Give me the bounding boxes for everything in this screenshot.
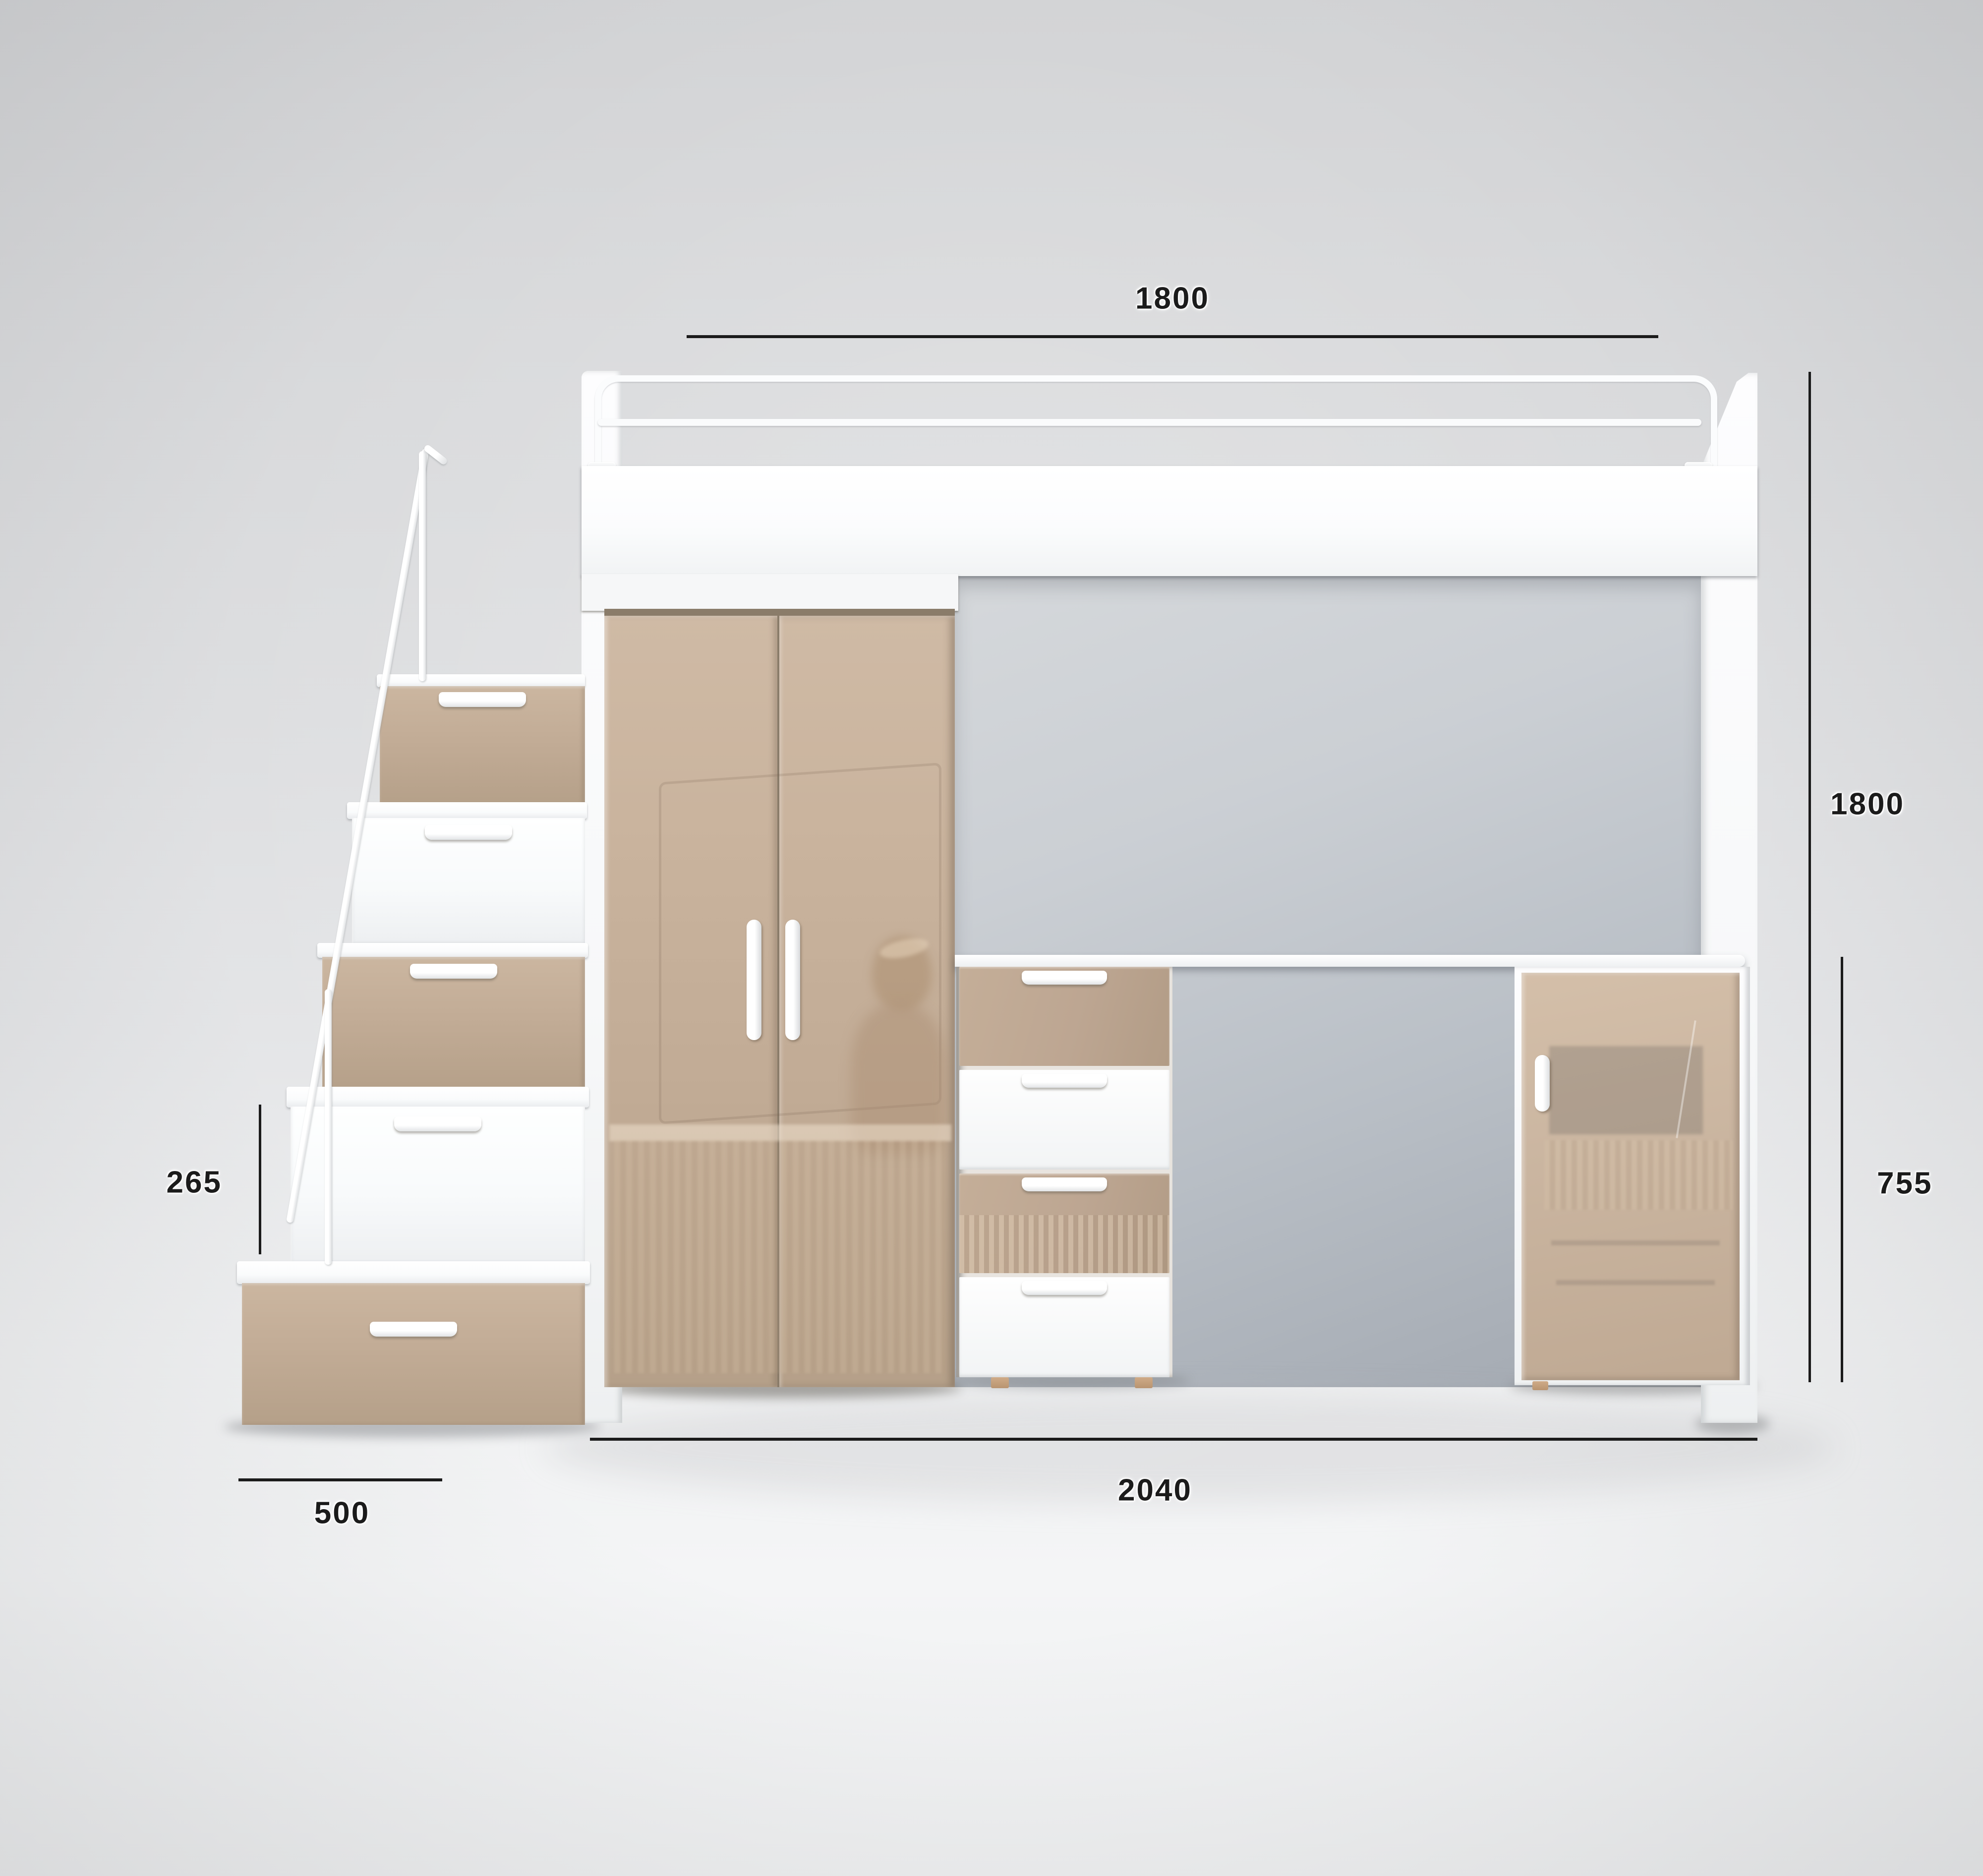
dim-label-bed-top-length: 1800 [1135, 281, 1210, 316]
step-3-tread [317, 943, 588, 958]
wardrobe-reflection-vanity-top [609, 1124, 951, 1141]
desk-drawer-3 [959, 1173, 1169, 1273]
step-1-tread [237, 1261, 590, 1284]
step-1-handle [370, 1322, 457, 1337]
drawer-unit-foot-left [991, 1377, 1009, 1388]
desk-drawer-3-handle [1022, 1177, 1107, 1191]
dim-label-unit-width: 2040 [1118, 1473, 1192, 1508]
desk-drawer-unit [956, 967, 1172, 1377]
wardrobe-reflection-vanity [614, 1140, 946, 1373]
wardrobe [604, 609, 955, 1387]
step-4-drawer [352, 818, 585, 946]
desk-drawer-4-handle [1022, 1281, 1107, 1295]
side-cabinet [1515, 967, 1750, 1385]
desk-drawer-1-handle [1022, 971, 1107, 985]
step-2-drawer [291, 1107, 585, 1265]
side-cabinet-door [1521, 973, 1740, 1380]
step-5-drawer [380, 686, 585, 805]
desk-drawer-1 [959, 967, 1169, 1066]
dim-label-overall-height: 1800 [1830, 787, 1905, 822]
guard-rail-middle [598, 419, 1701, 426]
desk-drawer-4 [959, 1277, 1169, 1377]
step-5-tread [377, 674, 585, 687]
dim-line-overall-height [1808, 372, 1811, 1382]
cabinet-foot [1532, 1381, 1548, 1390]
desk-worktop [955, 955, 1745, 967]
cabinet-reflection-shelf-1 [1551, 1240, 1720, 1245]
loft-bed-front-panel [582, 466, 1757, 576]
dim-label-desk-height: 755 [1877, 1166, 1932, 1201]
dim-line-unit-width [590, 1438, 1757, 1441]
desk-drawer-2-handle [1022, 1074, 1107, 1088]
scene: 1800 1800 755 265 500 2040 [0, 0, 1983, 1876]
desk-drawer-3-reflection [959, 1215, 1169, 1273]
dim-line-desk-height [1841, 957, 1843, 1382]
handrail-post-top [419, 451, 426, 681]
dim-label-step-height: 265 [167, 1165, 222, 1200]
step-4-handle [425, 825, 512, 840]
step-4-tread [347, 802, 587, 819]
wardrobe-handle-right [785, 920, 800, 1040]
dim-line-stairs-depth [238, 1478, 442, 1481]
cabinet-reflection-sideboard [1544, 1140, 1733, 1210]
desk-drawer-2 [959, 1070, 1169, 1170]
side-cabinet-handle [1535, 1055, 1550, 1112]
dim-line-bed-top-length [687, 335, 1658, 338]
step-2-handle [394, 1116, 481, 1131]
dim-label-stairs-depth: 500 [314, 1496, 370, 1531]
step-1-drawer [242, 1283, 585, 1425]
wardrobe-handle-left [747, 920, 761, 1040]
loft-bed-lower-rail [582, 574, 958, 611]
step-3-drawer [322, 957, 585, 1091]
cabinet-reflection-shelf-2 [1556, 1280, 1715, 1285]
step-5-handle [439, 692, 526, 707]
dim-line-step-height [259, 1105, 261, 1254]
step-3-handle [410, 964, 497, 979]
drawer-unit-foot-right [1135, 1377, 1153, 1388]
step-2-tread [287, 1087, 589, 1108]
handrail-post-bottom [325, 989, 332, 1265]
